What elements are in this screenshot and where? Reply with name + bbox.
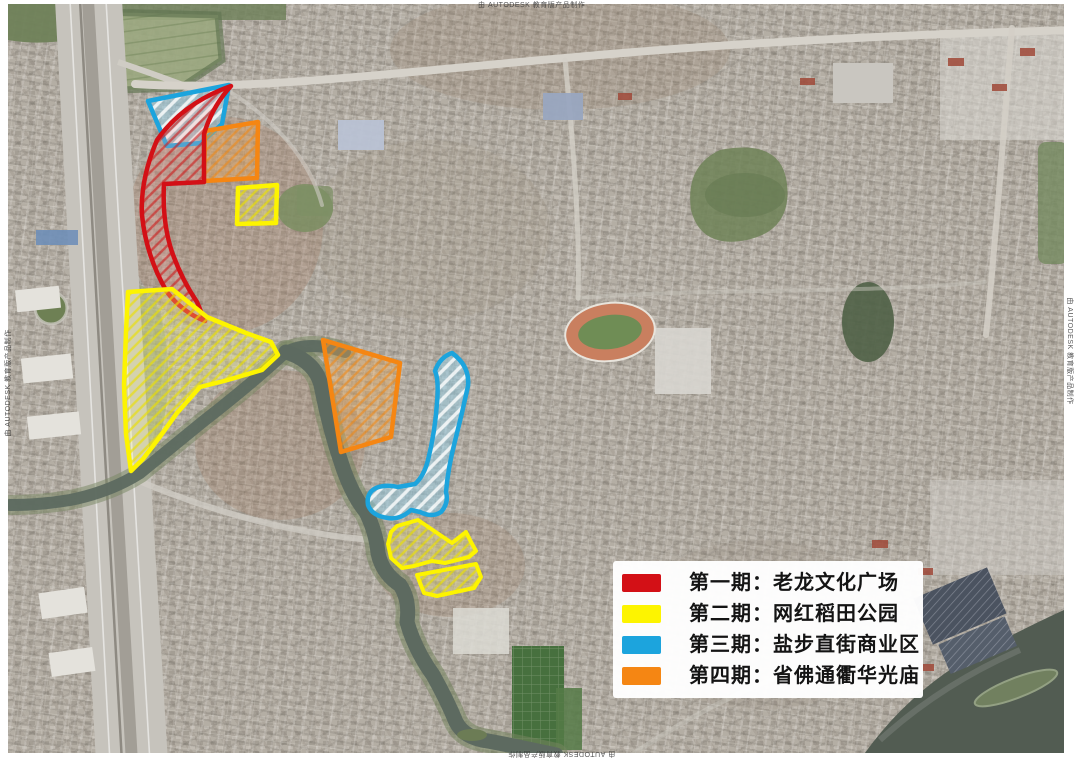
phase-1-color-swatch	[622, 574, 661, 592]
phase-3-color-swatch	[622, 636, 661, 654]
legend-label-phase-4: 第四期：省佛通衢华光庙	[689, 666, 920, 686]
watermark-left: 由 AUTODESK 教育版产品制作	[3, 323, 13, 443]
legend-label-phase-2: 第二期：网红稻田公园	[689, 604, 899, 624]
legend-item-phase-3: 第三期：盐步直街商业区	[622, 630, 923, 660]
watermark-bottom: 由 AUTODESK 教育版产品制作	[508, 749, 615, 759]
watermark-top: 由 AUTODESK 教育版产品制作	[478, 0, 585, 10]
legend-item-phase-4: 第四期：省佛通衢华光庙	[622, 661, 923, 691]
phase-4-color-swatch	[622, 667, 661, 685]
legend-item-phase-1: 第一期：老龙文化广场	[622, 568, 923, 598]
legend-label-phase-1: 第一期：老龙文化广场	[689, 573, 899, 593]
legend-label-phase-3: 第三期：盐步直街商业区	[689, 635, 920, 655]
legend-item-phase-2: 第二期：网红稻田公园	[622, 599, 923, 629]
phase-4-region-north	[204, 122, 258, 181]
watermark-right: 由 AUTODESK 教育版产品制作	[1065, 291, 1075, 411]
satellite-map-view: 由 AUTODESK 教育版产品制作 由 AUTODESK 教育版产品制作 由 …	[0, 0, 1080, 763]
legend-panel: 第一期：老龙文化广场 第二期：网红稻田公园 第三期：盐步直街商业区 第四期：省佛…	[613, 561, 923, 698]
phase-2-region-small	[237, 185, 277, 224]
phase-2-color-swatch	[622, 605, 661, 623]
